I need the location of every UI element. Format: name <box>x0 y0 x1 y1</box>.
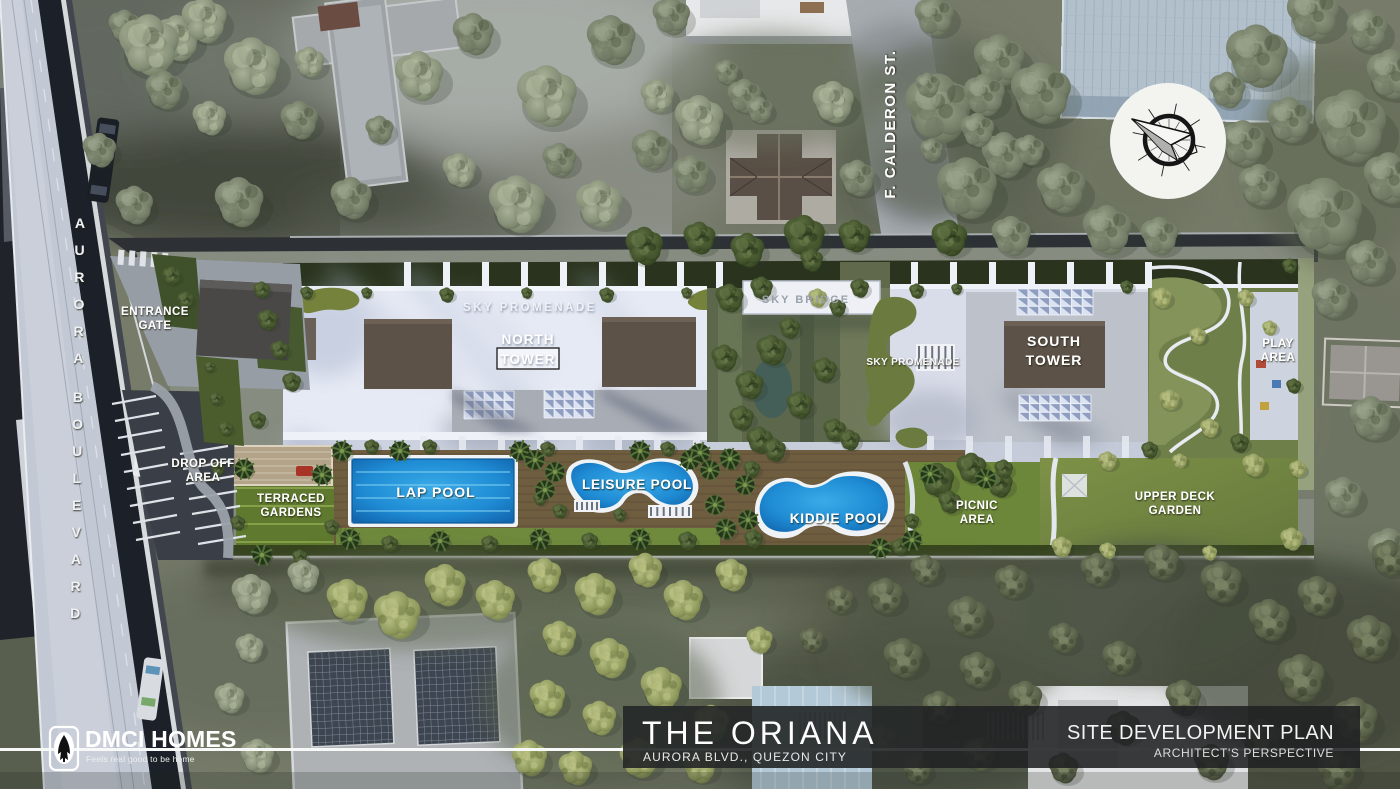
svg-text:SKY BRIDGE: SKY BRIDGE <box>762 294 850 306</box>
svg-text:V: V <box>72 524 82 540</box>
svg-text:GARDEN: GARDEN <box>1149 505 1202 517</box>
svg-text:SOUTH: SOUTH <box>1027 333 1081 349</box>
svg-text:B: B <box>73 389 83 405</box>
svg-text:GATE: GATE <box>138 320 171 332</box>
svg-text:AURORA BLVD., QUEZON CITY: AURORA BLVD., QUEZON CITY <box>643 750 847 764</box>
svg-text:AREA: AREA <box>1261 352 1296 364</box>
svg-text:LEISURE POOL: LEISURE POOL <box>582 477 692 492</box>
svg-text:NORTH: NORTH <box>502 332 555 347</box>
svg-text:AREA: AREA <box>186 472 221 484</box>
svg-text:PICNIC: PICNIC <box>956 500 998 512</box>
svg-text:DMCI HOMES: DMCI HOMES <box>85 726 237 752</box>
svg-text:E: E <box>72 497 81 513</box>
svg-text:THE ORIANA: THE ORIANA <box>642 715 878 751</box>
svg-text:L: L <box>73 470 82 486</box>
svg-text:SKY PROMENADE: SKY PROMENADE <box>463 302 597 314</box>
svg-text:TERRACED: TERRACED <box>257 493 325 505</box>
svg-text:D: D <box>70 605 80 621</box>
svg-text:O: O <box>72 416 83 432</box>
svg-text:R: R <box>70 578 80 594</box>
svg-text:UPPER DECK: UPPER DECK <box>1135 491 1216 503</box>
svg-text:TOWER: TOWER <box>1026 352 1083 368</box>
svg-text:AREA: AREA <box>960 514 995 526</box>
svg-text:A: A <box>73 350 83 366</box>
svg-text:ENTRANCE: ENTRANCE <box>121 306 189 318</box>
svg-text:LAP POOL: LAP POOL <box>396 484 475 500</box>
svg-text:Feels real good to be home: Feels real good to be home <box>86 754 195 764</box>
svg-text:DROP OFF: DROP OFF <box>171 458 234 470</box>
svg-text:R: R <box>74 323 84 339</box>
svg-text:A: A <box>75 215 85 231</box>
svg-text:KIDDIE POOL: KIDDIE POOL <box>790 511 887 526</box>
svg-text:TOWER: TOWER <box>501 352 556 367</box>
svg-text:U: U <box>75 242 85 258</box>
svg-text:ARCHITECT'S PERSPECTIVE: ARCHITECT'S PERSPECTIVE <box>1154 746 1334 760</box>
svg-text:A: A <box>71 551 81 567</box>
svg-text:F. CALDERON ST.: F. CALDERON ST. <box>882 49 899 198</box>
svg-text:O: O <box>73 296 84 312</box>
svg-text:SITE DEVELOPMENT PLAN: SITE DEVELOPMENT PLAN <box>1067 722 1334 744</box>
svg-text:U: U <box>72 443 82 459</box>
svg-text:PLAY: PLAY <box>1262 338 1294 350</box>
svg-text:R: R <box>74 269 84 285</box>
svg-text:GARDENS: GARDENS <box>260 507 321 519</box>
svg-text:SKY PROMENADE: SKY PROMENADE <box>866 357 959 368</box>
